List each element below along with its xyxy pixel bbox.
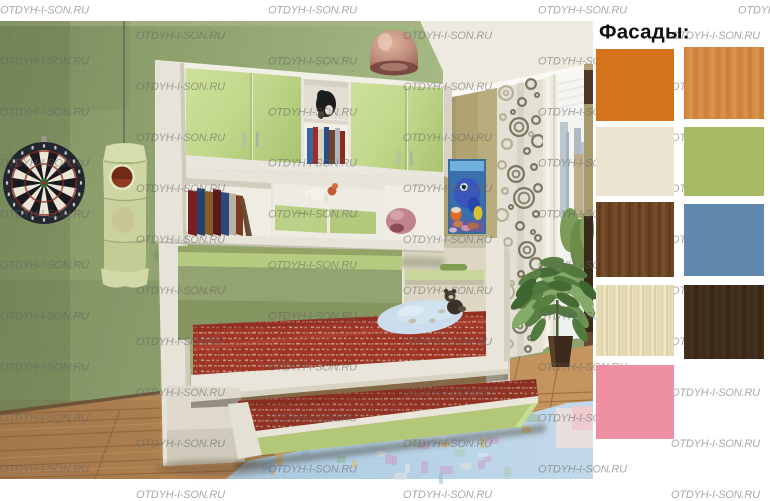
svg-text:OTDYH-I-SON.RU: OTDYH-I-SON.RU	[136, 81, 225, 93]
svg-text:OTDYH-I-SON.RU: OTDYH-I-SON.RU	[136, 489, 225, 501]
svg-text:OTDYH-I-SON.RU: OTDYH-I-SON.RU	[136, 30, 225, 42]
svg-text:OTDYH-I-SON.RU: OTDYH-I-SON.RU	[0, 209, 89, 221]
svg-text:OTDYH-I-SON.RU: OTDYH-I-SON.RU	[0, 311, 89, 323]
svg-text:OTDYH-I-SON.RU: OTDYH-I-SON.RU	[403, 387, 492, 399]
svg-text:OTDYH-I-SON.RU: OTDYH-I-SON.RU	[136, 234, 225, 246]
svg-text:OTDYH-I-SON.RU: OTDYH-I-SON.RU	[0, 464, 89, 476]
svg-text:OTDYH-I-SON.RU: OTDYH-I-SON.RU	[0, 362, 89, 374]
svg-text:OTDYH-I-SON.RU: OTDYH-I-SON.RU	[403, 438, 492, 450]
svg-text:OTDYH-I-SON.RU: OTDYH-I-SON.RU	[136, 285, 225, 297]
svg-text:OTDYH-I-SON.RU: OTDYH-I-SON.RU	[0, 158, 89, 170]
svg-text:OTDYH-I-SON.RU: OTDYH-I-SON.RU	[268, 158, 357, 170]
svg-text:OTDYH-I-SON.RU: OTDYH-I-SON.RU	[136, 336, 225, 348]
svg-text:OTDYH-I-SON.RU: OTDYH-I-SON.RU	[268, 311, 357, 323]
svg-text:OTDYH-I-SON.RU: OTDYH-I-SON.RU	[268, 107, 357, 119]
svg-text:OTDYH-I-SON.RU: OTDYH-I-SON.RU	[268, 56, 357, 68]
svg-text:OTDYH-I-SON.RU: OTDYH-I-SON.RU	[136, 132, 225, 144]
svg-text:OTDYH-I-SON.RU: OTDYH-I-SON.RU	[671, 489, 760, 501]
svg-text:OTDYH-I-SON.RU: OTDYH-I-SON.RU	[136, 438, 225, 450]
svg-text:OTDYH-I-SON.RU: OTDYH-I-SON.RU	[538, 5, 627, 17]
svg-text:OTDYH-I-SON.RU: OTDYH-I-SON.RU	[268, 209, 357, 221]
svg-text:OTDYH-I-SON.RU: OTDYH-I-SON.RU	[403, 336, 492, 348]
svg-text:OTDYH-I-SON.RU: OTDYH-I-SON.RU	[268, 413, 357, 425]
svg-text:OTDYH-I-SON.RU: OTDYH-I-SON.RU	[268, 5, 357, 17]
svg-text:OTDYH-I-SON.RU: OTDYH-I-SON.RU	[0, 413, 89, 425]
svg-text:OTDYH-I-SON.RU: OTDYH-I-SON.RU	[403, 30, 492, 42]
svg-text:OTDYH-I-SON.RU: OTDYH-I-SON.RU	[268, 260, 357, 272]
svg-text:OTDYH-I-SON.RU: OTDYH-I-SON.RU	[136, 183, 225, 195]
svg-text:OTDYH-I-SON.RU: OTDYH-I-SON.RU	[538, 464, 627, 476]
svg-text:OTDYH-I-SON.RU: OTDYH-I-SON.RU	[268, 464, 357, 476]
svg-text:OTDYH-I-SON.RU: OTDYH-I-SON.RU	[0, 107, 89, 119]
svg-text:Фасады:: Фасады:	[599, 21, 690, 44]
svg-text:OTDYH-I-SON.RU: OTDYH-I-SON.RU	[0, 56, 89, 68]
svg-text:OTDYH-I-SON.RU: OTDYH-I-SON.RU	[671, 438, 760, 450]
svg-text:OTDYH-I-SON.RU: OTDYH-I-SON.RU	[268, 362, 357, 374]
svg-text:OTDYH-I-SON.RU: OTDYH-I-SON.RU	[403, 132, 492, 144]
svg-text:OTDYH-I-SON.RU: OTDYH-I-SON.RU	[403, 234, 492, 246]
svg-text:OTDYH-I-SON.RU: OTDYH-I-SON.RU	[0, 260, 89, 272]
svg-text:OTDYH-I-SON.RU: OTDYH-I-SON.RU	[403, 183, 492, 195]
svg-text:OTDYH-I-SON.RU: OTDYH-I-SON.RU	[403, 285, 492, 297]
svg-text:OTDYH-I-SON.RU: OTDYH-I-SON.RU	[671, 387, 760, 399]
svg-text:OTDYH-I-SON.RU: OTDYH-I-SON.RU	[403, 81, 492, 93]
svg-text:OTDYH-I-SON.RU: OTDYH-I-SON.RU	[0, 5, 89, 17]
svg-text:OTDYH-I-SON.RU: OTDYH-I-SON.RU	[738, 5, 770, 17]
svg-text:OTDYH-I-SON.RU: OTDYH-I-SON.RU	[403, 489, 492, 501]
svg-text:OTDYH-I-SON.RU: OTDYH-I-SON.RU	[136, 387, 225, 399]
